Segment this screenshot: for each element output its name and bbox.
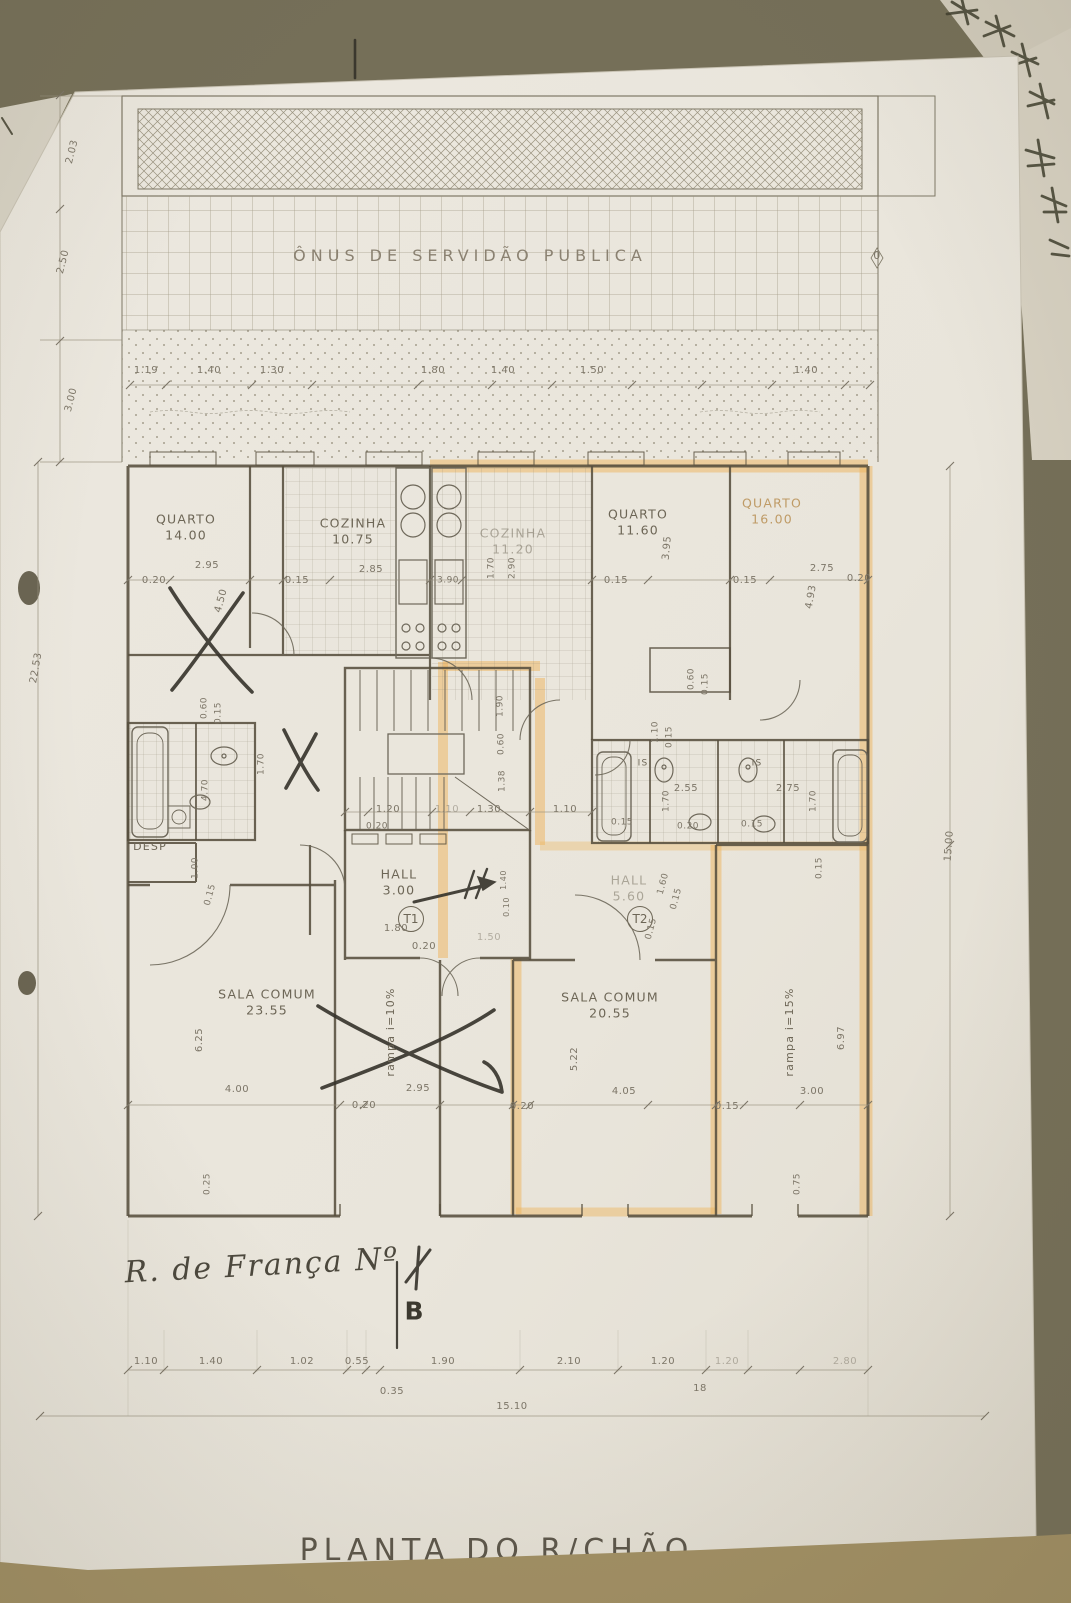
floor-plan-photo: PLANTA DO R/CHÃO ÔNUS DE SERVIDÃO PUBLIC… bbox=[0, 0, 1071, 1603]
photo-vignette bbox=[0, 0, 1071, 1603]
floor-plan-drawing: PLANTA DO R/CHÃO bbox=[0, 0, 1071, 1603]
